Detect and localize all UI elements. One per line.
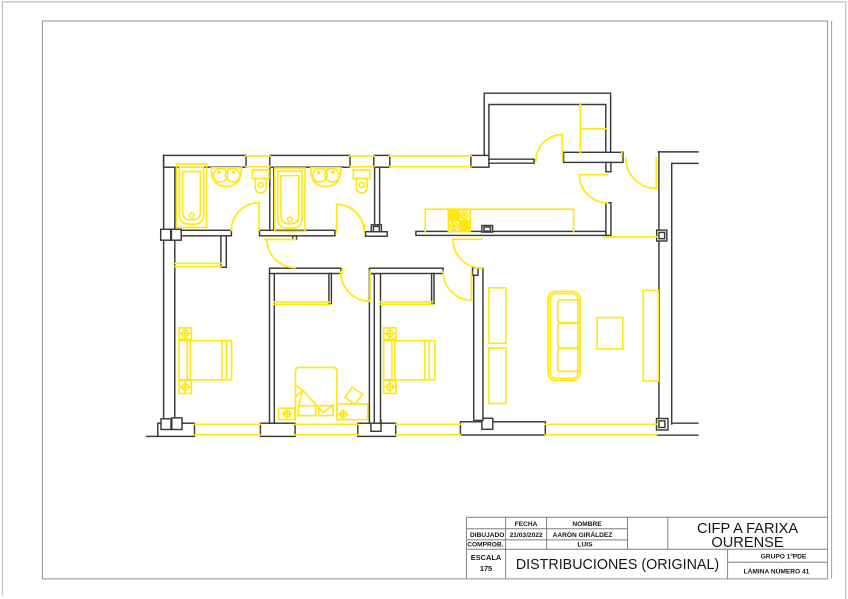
svg-text:21/03/2022: 21/03/2022: [510, 532, 543, 539]
svg-text:AARÓN GIRÁLDEZ: AARÓN GIRÁLDEZ: [553, 530, 613, 539]
svg-text:NOMBRE: NOMBRE: [572, 521, 602, 528]
svg-text:DISTRIBUCIONES (ORIGINAL): DISTRIBUCIONES (ORIGINAL): [516, 557, 719, 573]
svg-text:ESCALA: ESCALA: [471, 553, 502, 562]
svg-text:LÁMINA NÚMERO 41: LÁMINA NÚMERO 41: [744, 566, 810, 575]
svg-text:175: 175: [480, 564, 492, 573]
svg-text:FECHA: FECHA: [515, 521, 538, 528]
svg-text:GRUPO 1ºPDE: GRUPO 1ºPDE: [761, 553, 807, 560]
svg-text:OURENSE: OURENSE: [711, 535, 783, 551]
svg-text:COMPROB.: COMPROB.: [467, 542, 503, 549]
svg-text:DIBUJADO: DIBUJADO: [470, 532, 504, 539]
svg-text:LUIS: LUIS: [577, 542, 593, 549]
